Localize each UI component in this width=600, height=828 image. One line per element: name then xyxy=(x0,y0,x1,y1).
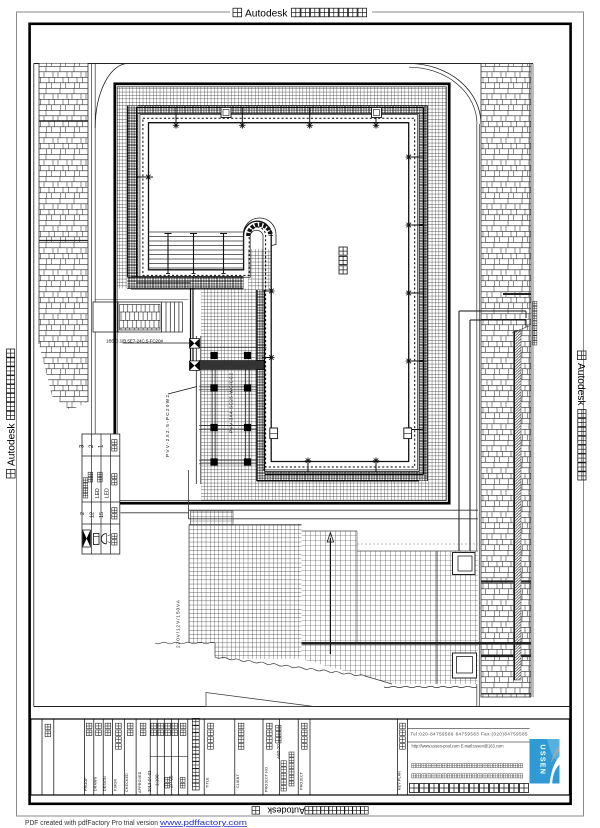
svg-text:220V/12V/150VA: 220V/12V/150VA xyxy=(176,599,182,648)
svg-text:PROJECT NO.: PROJECT NO. xyxy=(264,766,268,792)
svg-text:A60-20: A60-20 xyxy=(276,744,281,759)
svg-text:LED: LED xyxy=(105,488,111,498)
svg-text:ZP-05: ZP-05 xyxy=(168,775,173,788)
svg-text:2013-04-03: 2013-04-03 xyxy=(147,770,152,792)
svg-text:12: 12 xyxy=(90,512,96,518)
svg-text:Autodesk: Autodesk xyxy=(245,8,288,19)
svg-text:DRAWN: DRAWN xyxy=(94,776,98,791)
svg-text:TITLE: TITLE xyxy=(206,777,210,788)
svg-text:PDF created with pdfFactory Pr: PDF created with pdfFactory Pro trial ve… xyxy=(25,818,158,827)
svg-text:APPROVED: APPROVED xyxy=(138,771,142,793)
svg-text:Autodesk: Autodesk xyxy=(575,363,586,406)
svg-text:PVV-2X2.5-PC20W2: PVV-2X2.5-PC20W2 xyxy=(165,395,171,457)
svg-text:1:100: 1:100 xyxy=(154,774,159,786)
svg-text:USSEN: USSEN xyxy=(539,745,546,776)
svg-text:www.pdffactory.com: www.pdffactory.com xyxy=(159,818,247,827)
svg-text:Autodesk: Autodesk xyxy=(267,806,305,816)
svg-text:PVV-3X4-SC25-WC/CC2: PVV-3X4-SC25-WC/CC2 xyxy=(228,373,234,433)
svg-text:LED: LED xyxy=(95,488,101,498)
svg-text:P.MGR: P.MGR xyxy=(113,778,117,791)
svg-text:CLIENT: CLIENT xyxy=(236,773,240,788)
svg-text:PROOF: PROOF xyxy=(84,777,88,791)
svg-text:http://www.ussen-pool.com E-ma: http://www.ussen-pool.com E-mail:ussen@1… xyxy=(412,744,505,749)
svg-text:2: 2 xyxy=(80,512,86,515)
svg-text:KEY PLAN: KEY PLAN xyxy=(398,771,402,790)
svg-text:Autodesk: Autodesk xyxy=(7,423,18,466)
svg-text:15: 15 xyxy=(99,512,105,518)
svg-text:CHECKED: CHECKED xyxy=(125,773,129,792)
svg-text:Tel:020-84759586 84759583 Fax:: Tel:020-84759586 84759583 Fax:(020)84759… xyxy=(411,732,529,737)
svg-text:PROJECT: PROJECT xyxy=(299,771,303,790)
svg-text:DESIGN: DESIGN xyxy=(103,776,107,791)
